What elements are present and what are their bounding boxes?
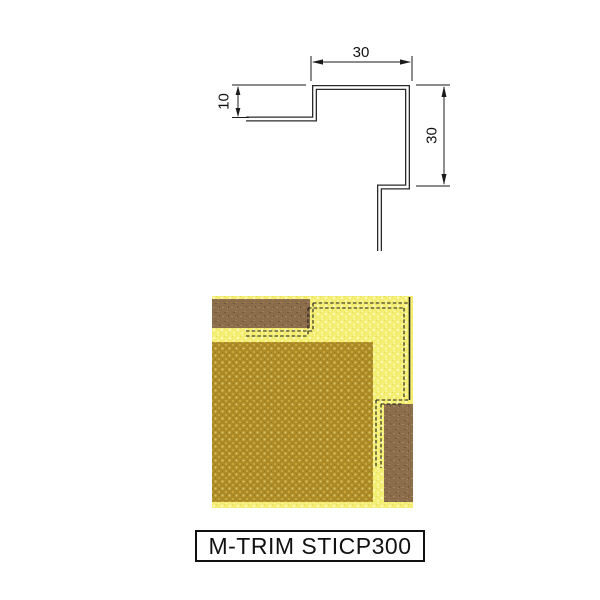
profile-outline-core [246, 88, 408, 252]
dim-top-arrow-right [400, 59, 411, 64]
dim-left-arrow-up [236, 86, 241, 95]
dim-top-arrow-left [312, 59, 323, 64]
dim-top-value: 30 [353, 44, 370, 61]
dim-left [232, 85, 306, 118]
dim-right-arrow-up [442, 86, 447, 97]
profile-outline-wall [246, 88, 408, 252]
dim-right-arrow-down [442, 174, 447, 185]
product-label: M-TRIM STICP300 [195, 530, 425, 562]
page: 30 10 30 [0, 0, 600, 600]
bottom-right-panel [384, 404, 413, 502]
technical-drawing: 30 10 30 [0, 0, 600, 290]
top-left-panel [212, 299, 310, 328]
dim-left-arrow-down [236, 108, 241, 117]
main-panel [212, 342, 373, 502]
dim-right-value: 30 [424, 127, 441, 144]
application-illustration [212, 296, 413, 508]
dim-left-value: 10 [216, 93, 233, 110]
product-label-text: M-TRIM STICP300 [208, 533, 411, 560]
